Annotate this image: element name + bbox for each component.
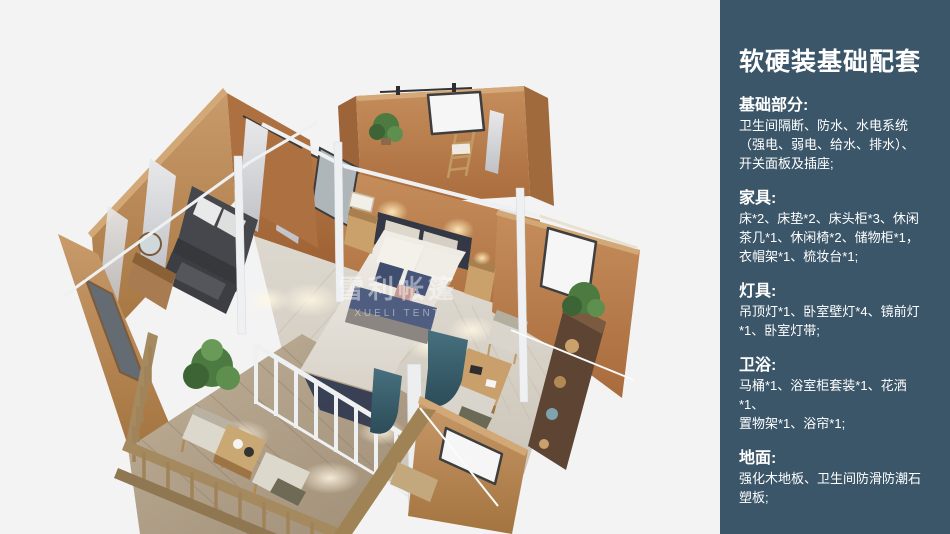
section-lighting-heading: 灯具:	[739, 282, 931, 302]
towel	[452, 144, 470, 155]
svg-text:XUELI TENT: XUELI TENT	[354, 308, 442, 319]
section-flooring-body: 强化木地板、卫生间防滑防潮石 塑板;	[739, 469, 931, 507]
section-bathroom-heading: 卫浴:	[739, 356, 931, 376]
render-area: 雪利帐篷 XUELI TENT	[0, 0, 720, 534]
sidebar-title: 软硬装基础配套	[739, 46, 931, 78]
section-furniture: 家具: 床*2、床垫*2、床头柜*3、休闲 茶几*1、休闲椅*2、储物柜*1， …	[739, 189, 931, 266]
section-lighting-body: 吊顶灯*1、卧室壁灯*4、镜前灯 *1、卧室灯带;	[739, 302, 931, 340]
section-bathroom-body: 马桶*1、浴室柜套装*1、花洒*1、 置物架*1、浴帘*1;	[739, 376, 931, 433]
bathroom-window	[428, 92, 484, 134]
section-basics: 基础部分: 卫生间隔断、防水、水电系统 （强电、弱电、给水、排水）、 开关面板及…	[739, 96, 931, 173]
section-lighting: 灯具: 吊顶灯*1、卧室壁灯*4、镜前灯 *1、卧室灯带;	[739, 282, 931, 340]
section-bathroom: 卫浴: 马桶*1、浴室柜套装*1、花洒*1、 置物架*1、浴帘*1;	[739, 356, 931, 433]
section-basics-heading: 基础部分:	[739, 96, 931, 116]
svg-text:雪利帐篷: 雪利帐篷	[338, 274, 458, 304]
slide: 雪利帐篷 XUELI TENT 软硬装基础配套 基础部分: 卫生间隔断、防水、水…	[0, 0, 950, 534]
section-basics-body: 卫生间隔断、防水、水电系统 （强电、弱电、给水、排水）、 开关面板及插座;	[739, 116, 931, 173]
render-3d-scene: 雪利帐篷 XUELI TENT	[0, 0, 720, 534]
watermark: 雪利帐篷 XUELI TENT	[338, 274, 458, 319]
section-flooring: 地面: 强化木地板、卫生间防滑防潮石 塑板;	[739, 449, 931, 507]
section-flooring-heading: 地面:	[739, 449, 931, 469]
section-furniture-heading: 家具:	[739, 189, 931, 209]
spec-sidebar: 软硬装基础配套 基础部分: 卫生间隔断、防水、水电系统 （强电、弱电、给水、排水…	[720, 0, 950, 534]
section-furniture-body: 床*2、床垫*2、床头柜*3、休闲 茶几*1、休闲椅*2、储物柜*1， 衣帽架*…	[739, 209, 931, 266]
